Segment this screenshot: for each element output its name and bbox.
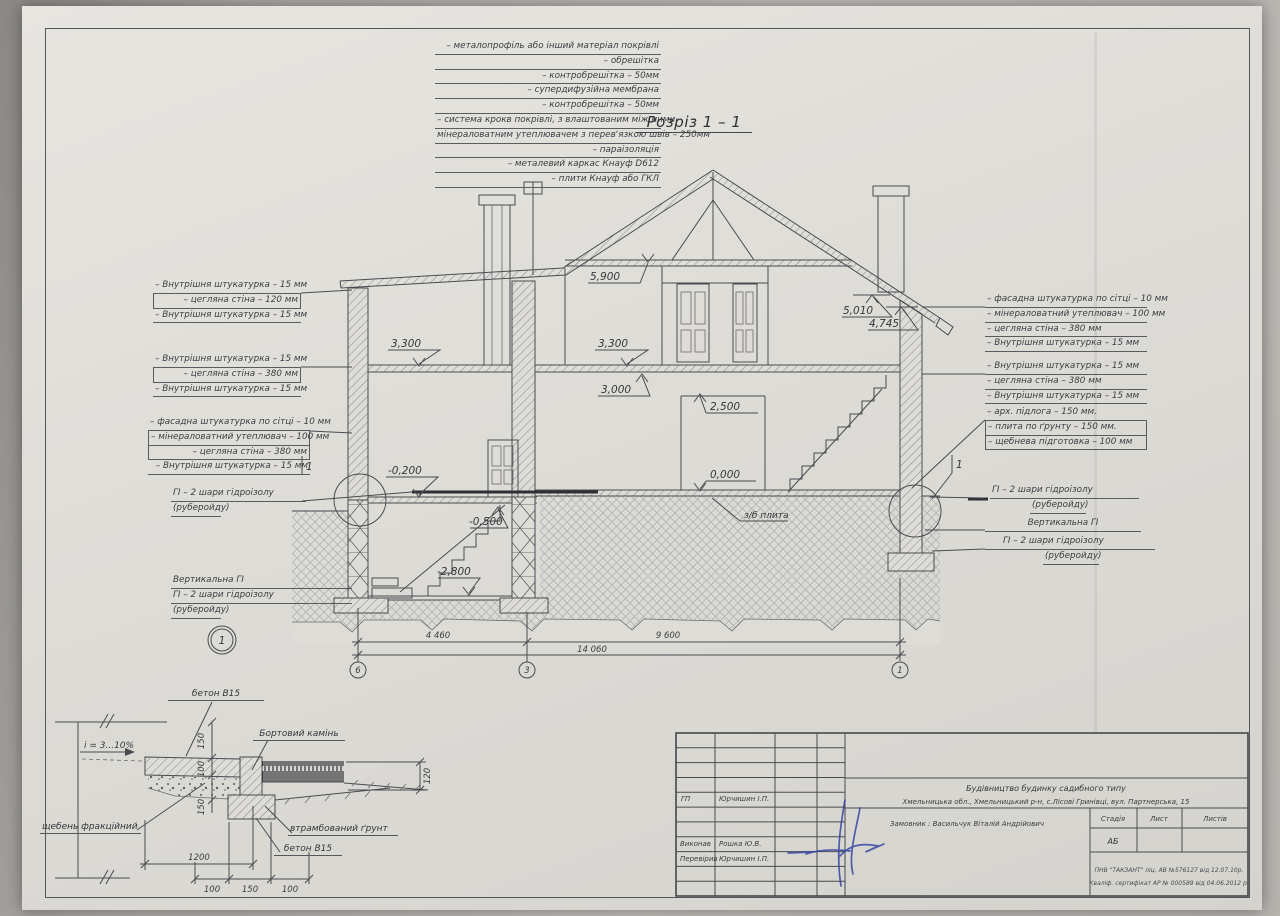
titleblock-project-type: Будівництво будинку садибного типу xyxy=(966,784,1126,793)
dim-total: 14 060 xyxy=(577,645,607,655)
gi-label-left-vertical: Вертикальна ГІ xyxy=(171,574,352,589)
axis-right: 1 xyxy=(897,666,902,676)
titleblock-stage-value: АБ xyxy=(1107,837,1119,846)
callout-row: – Внутрішня штукатурка – 15 мм xyxy=(985,390,1147,405)
titleblock-made-name: Рошка Ю.В. xyxy=(719,840,761,848)
titleblock-license-2: Кваліф. сертифікат АР № 000589 від 04.06… xyxy=(1089,880,1249,887)
callout-row: – Внутрішня штукатурка – 15 мм xyxy=(153,309,301,324)
detail-callout-bubble: 1 xyxy=(208,626,236,654)
detail-label-gravel: щебень фракційний xyxy=(40,821,141,834)
callout-row: – цегляна стіна – 380 мм xyxy=(153,368,301,383)
callout-row: – мінераловатний утеплювач – 100 мм xyxy=(148,431,310,446)
attic-doors xyxy=(662,266,768,365)
gi-label-right-top: ГІ – 2 шари гідроізолу (руберойду) xyxy=(990,484,1139,514)
detail-callout-number: 1 xyxy=(219,635,226,647)
right-floor-callout: – арх. підлога – 150 мм. – плита по ґрун… xyxy=(985,406,1147,450)
titleblock-license-1: ПНВ "ТАКЗАНТ" ліц. АВ №576127 від 12.07.… xyxy=(1095,867,1244,874)
callout-row: – металопрофіль або інший матеріал покрі… xyxy=(435,40,661,55)
axis-middle: 3 xyxy=(524,666,529,676)
callout-row: – Внутрішня штукатурка – 15 мм xyxy=(153,353,301,368)
gi-label-left-bottom: ГІ – 2 шари гідроізолу (руберойду) xyxy=(171,589,352,619)
elevation-lintel: 2,500 xyxy=(710,401,740,413)
detail-label-curb: Бортовий камінь xyxy=(253,728,345,741)
callout-row: – супердифузійна мембрана xyxy=(435,84,661,99)
elevation-eave-low: 4,745 xyxy=(869,318,899,330)
callout-row: – мінераловатний утеплювач – 100 мм xyxy=(985,308,1147,323)
dim-span-right: 9 600 xyxy=(656,631,680,641)
stairs-ground-to-first xyxy=(788,375,886,492)
detail-dim-120: 120 xyxy=(423,768,433,784)
callout-row: – металевий каркас Кнауф D612 xyxy=(435,158,661,173)
callout-row: Вертикальна ГІ xyxy=(985,517,1141,532)
callout-row: – контробрешітка – 50мм xyxy=(435,70,661,85)
callout-row: – Внутрішня штукатурка – 15 мм xyxy=(153,279,301,294)
right-mid-wall-callout: – Внутрішня штукатурка – 15 мм – цегляна… xyxy=(985,360,1147,404)
titleblock-project-address: Хмельницька обл., Хмельницький р-н, с.Лі… xyxy=(902,798,1190,806)
gi-label-left-top: ГІ – 2 шари гідроізолу (руберойду) xyxy=(171,487,306,517)
roof-layers-callout: – металопрофіль або інший матеріал покрі… xyxy=(435,40,661,188)
curb-detail: 150 100 150 120 1200 100 150 100 i = 3..… xyxy=(55,702,433,895)
elevation-floor2-left: 3,300 xyxy=(391,338,421,350)
titleblock-sheet-label: Лист xyxy=(1149,815,1169,823)
callout-row: – система крокв покрівлі, з влаштованим … xyxy=(435,114,661,129)
detail-dim-150-top: 150 xyxy=(197,733,207,749)
detail-dim-100: 100 xyxy=(197,761,207,777)
ground-hatch xyxy=(292,496,940,645)
callout-row: ГІ – 2 шари гідроізолу xyxy=(171,589,352,604)
title-block: ГП Юрчишин І.П. Виконав Рошка Ю.В. Перев… xyxy=(676,733,1249,896)
pen-signature xyxy=(788,800,884,886)
callout-row: – цегляна стіна – 120 мм xyxy=(153,294,301,309)
elevation-minus28: -2,800 xyxy=(437,566,471,578)
titleblock-made-label: Виконав xyxy=(680,840,711,848)
elevation-ceiling1: 3,000 xyxy=(601,384,631,396)
elevation-attic: 5,900 xyxy=(590,271,620,283)
detail-dim-100-left: 100 xyxy=(204,885,220,895)
callout-row: – Внутрішня штукатурка – 15 мм xyxy=(153,383,301,398)
detail-dim-150-bot: 150 xyxy=(197,799,207,815)
elevation-zero: 0,000 xyxy=(710,469,740,481)
callout-row: ГІ – 2 шари гідроізолу xyxy=(985,535,1155,550)
titleblock-checked-label: Перевірив xyxy=(680,855,718,863)
detail-label-soil: втрамбований ґрунт xyxy=(288,823,398,836)
dim-span-left: 4 460 xyxy=(426,631,450,641)
axis-left: 6 xyxy=(355,666,361,676)
callout-row: – фасадна штукатурка по сітці – 10 мм xyxy=(148,416,310,431)
callout-row: – Внутрішня штукатурка – 15 мм xyxy=(148,460,310,475)
callout-row: – цегляна стіна – 380 мм xyxy=(985,323,1147,338)
callout-row: (руберойду) xyxy=(1030,499,1086,514)
detail-label-concrete-bottom: бетон В15 xyxy=(274,843,342,856)
left-lower-wall-callout: – фасадна штукатурка по сітці – 10 мм – … xyxy=(148,416,310,475)
callout-row: – фасадна штукатурка по сітці – 10 мм xyxy=(985,293,1147,308)
titleblock-gp-name: Юрчишин І.П. xyxy=(719,795,769,803)
callout-row: – арх. підлога – 150 мм. xyxy=(985,406,1147,421)
detail-flag-right: 1 xyxy=(932,455,963,499)
elevation-eave-high: 5,010 xyxy=(843,305,873,317)
left-upper-wall-callout: – Внутрішня штукатурка – 15 мм – цегляна… xyxy=(153,279,301,323)
callout-row: – Внутрішня штукатурка – 15 мм xyxy=(985,360,1147,375)
detail-dim-150: 150 xyxy=(242,885,258,895)
elevation-minus05: -0,500 xyxy=(469,516,503,528)
elevation-minus02: -0,200 xyxy=(388,465,422,477)
titleblock-stage-label: Стадія xyxy=(1101,815,1125,823)
callout-row: – плити Кнауф або ГКЛ xyxy=(435,173,661,188)
detail-dim-1200: 1200 xyxy=(188,853,210,863)
left-mid-wall-callout: – Внутрішня штукатурка – 15 мм – цегляна… xyxy=(153,353,301,397)
callout-row: ГІ – 2 шари гідроізолу xyxy=(990,484,1139,499)
callout-row: – Внутрішня штукатурка – 15 мм xyxy=(985,337,1147,352)
callout-row: мінераловатним утеплювачем з перев'язкою… xyxy=(435,129,661,144)
callout-row: – контробрешітка – 50мм xyxy=(435,99,661,114)
callout-row: (руберойду) xyxy=(1043,550,1099,565)
gi-label-right-vertical: Вертикальна ГІ xyxy=(985,517,1141,532)
gi-label-right-bottom: ГІ – 2 шари гідроізолу (руберойду) xyxy=(985,535,1155,565)
detail-dim-100-right: 100 xyxy=(282,885,298,895)
right-upper-wall-callout: – фасадна штукатурка по сітці – 10 мм – … xyxy=(985,293,1147,352)
titleblock-sheets-label: Листів xyxy=(1202,815,1227,823)
callout-row: – цегляна стіна – 380 мм xyxy=(985,375,1147,390)
callout-row: – плита по ґрунту – 150 мм. xyxy=(985,421,1147,436)
titleblock-client: Замовник : Васильчук Віталій Андрійович xyxy=(890,820,1044,828)
detail-label-concrete-top: бетон В15 xyxy=(168,688,264,701)
axis-bubbles: 6 3 1 xyxy=(350,662,908,678)
callout-row: – обрешітка xyxy=(435,55,661,70)
titleblock-checked-name: Юрчишин І.П. xyxy=(719,855,769,863)
slab-label: з/б плита xyxy=(744,511,788,521)
callout-row: (руберойду) xyxy=(171,502,221,517)
callout-row: – цегляна стіна – 380 мм xyxy=(148,446,310,461)
callout-row: – параізоляція xyxy=(435,144,661,159)
callout-row: ГІ – 2 шари гідроізолу xyxy=(171,487,306,502)
callout-row: (руберойду) xyxy=(171,604,221,619)
slope-label: i = 3...10% xyxy=(84,741,134,751)
callout-row: – щебнева підготовка – 100 мм xyxy=(985,436,1147,451)
callout-row: Вертикальна ГІ xyxy=(171,574,352,589)
elevation-floor2-right: 3,300 xyxy=(598,338,628,350)
titleblock-gp-label: ГП xyxy=(681,795,691,803)
detail-flag-number: 1 xyxy=(956,459,963,471)
